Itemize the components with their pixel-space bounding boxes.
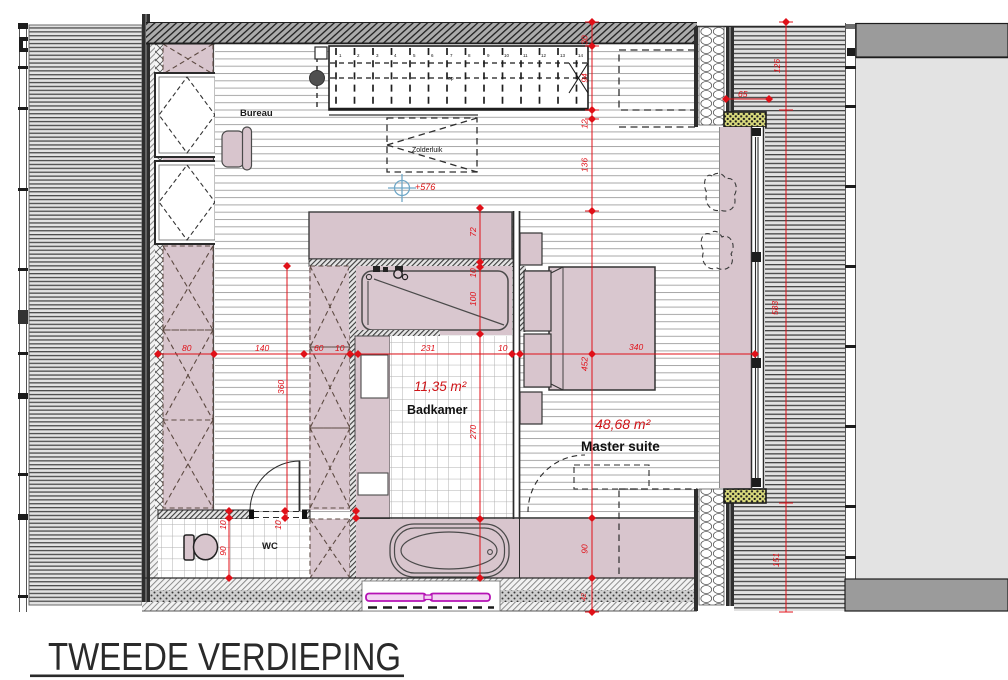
svg-text:126: 126 [772,59,782,73]
svg-text:48,68 m²: 48,68 m² [595,416,652,432]
svg-text:90: 90 [580,544,590,554]
svg-text:10: 10 [468,268,478,278]
svg-text:12: 12 [541,53,547,58]
svg-text:Badkamer: Badkamer [407,403,468,417]
svg-text:TWEEDE VERDIEPING: TWEEDE VERDIEPING [48,636,401,679]
svg-text:65: 65 [738,89,748,99]
svg-text:140: 140 [255,343,269,353]
svg-text:Bureau: Bureau [240,108,273,119]
svg-text:136: 136 [580,158,590,172]
svg-text:WC: WC [262,541,278,552]
svg-text:90: 90 [218,546,228,556]
svg-text:231: 231 [420,343,435,353]
svg-text:op: op [448,76,454,82]
svg-text:94: 94 [580,73,590,83]
svg-text:Master suite: Master suite [581,439,660,454]
svg-text:452: 452 [580,357,590,371]
svg-text:13: 13 [560,53,566,58]
svg-text:340: 340 [629,342,643,352]
svg-text:11: 11 [523,53,528,58]
svg-text:583: 583 [770,301,780,315]
svg-text:270: 270 [468,425,478,440]
svg-text:360: 360 [276,380,286,394]
svg-text:10: 10 [218,520,228,530]
svg-text:42: 42 [581,593,588,601]
svg-text:72: 72 [468,227,478,237]
svg-text:10: 10 [504,53,510,58]
svg-text:12: 12 [580,119,590,129]
svg-text:80: 80 [182,343,192,353]
svg-text:10: 10 [498,343,508,353]
svg-text:151: 151 [771,553,781,567]
svg-text:100: 100 [468,292,478,306]
svg-text:10: 10 [273,520,283,530]
svg-text:14: 14 [578,53,584,58]
svg-text:10: 10 [335,343,345,353]
svg-text:60: 60 [314,343,324,353]
svg-text:+576: +576 [415,182,435,192]
svg-text:Zolderluik: Zolderluik [412,147,443,154]
svg-text:11,35 m²: 11,35 m² [414,379,467,394]
svg-text:30: 30 [580,35,590,45]
